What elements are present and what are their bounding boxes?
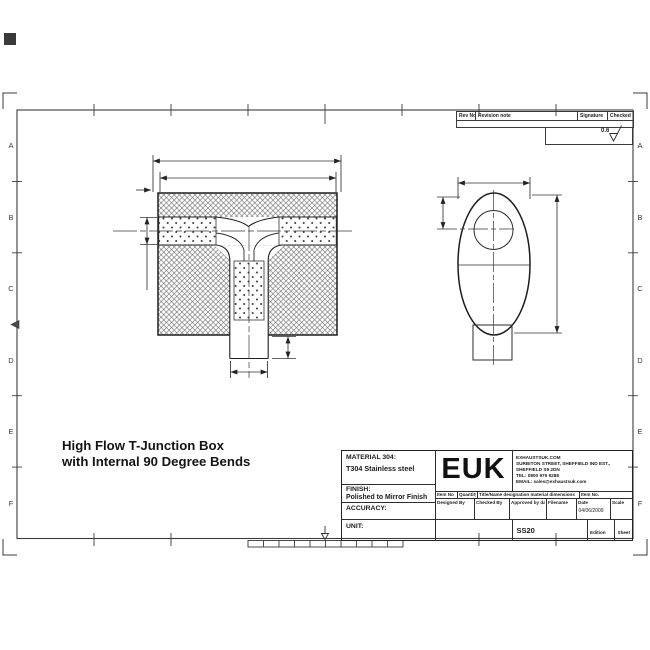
sheet-label: Sheet xyxy=(618,530,633,535)
signature-header: Signature xyxy=(578,112,608,120)
main-view xyxy=(113,155,352,378)
checked-header: Checked xyxy=(608,112,633,120)
approved-by-header: Approved by date xyxy=(511,500,545,505)
item-no2-header: Item No. xyxy=(581,492,631,497)
zone-letter-right-b: B xyxy=(634,213,646,222)
checked-by-header: Checked By xyxy=(476,500,508,505)
filename-header: Filename xyxy=(548,500,575,505)
roughness-value: 0.6 xyxy=(601,128,609,134)
material-label: MATERIAL 304: xyxy=(346,454,396,461)
drawing-linework xyxy=(0,0,650,650)
center-mark-bottom-icon xyxy=(322,526,329,540)
drawing-sheet: A B C D E F A B C D E F Rev No Revision … xyxy=(0,0,650,650)
drawing-title: High Flow T-Junction Box with Internal 9… xyxy=(62,438,250,469)
finish-label: FINISH: xyxy=(346,486,371,493)
company-logo: EUK xyxy=(435,453,512,486)
finish-value: Polished to Mirror Finish xyxy=(346,494,427,501)
drawing-title-line2: with Internal 90 Degree Bends xyxy=(62,454,250,470)
revision-table-header-row: Rev No Revision note Signature Checked xyxy=(457,112,633,121)
company-email: EMAIL: sales@exhaustsuk.com xyxy=(516,479,610,485)
zone-letter-right-f: F xyxy=(634,499,646,508)
item-no-header: Item No xyxy=(437,492,456,497)
company-address1: SURBITON STREET, SHEFFIELD IND EST., xyxy=(516,461,610,467)
date-value: 04/06/2009 xyxy=(579,508,604,514)
unit-label: UNIT: xyxy=(346,523,363,530)
rev-no-header: Rev No xyxy=(457,112,476,120)
scale-header: Scale xyxy=(612,500,631,505)
drawing-title-line1: High Flow T-Junction Box xyxy=(62,438,250,454)
accuracy-label: ACCURACY: xyxy=(346,505,387,512)
zone-letter-left-e: E xyxy=(5,427,17,436)
edition-label: Edition xyxy=(590,530,613,535)
date-header: Date xyxy=(578,500,609,505)
quantity-header: Quantity xyxy=(459,492,476,497)
drawing-number: SS20 xyxy=(517,526,535,535)
revision-table: Rev No Revision note Signature Checked xyxy=(456,111,634,128)
company-address: EXHAUSTSUK.COM SURBITON STREET, SHEFFIEL… xyxy=(516,455,610,486)
zone-letter-right-c: C xyxy=(634,284,646,293)
side-view xyxy=(437,177,562,368)
zone-letter-right-a: A xyxy=(634,141,646,150)
zone-letter-left-c: C xyxy=(5,284,17,293)
zone-letter-left-f: F xyxy=(5,499,17,508)
reference-scale-strip xyxy=(248,541,403,548)
roughness-box: 0.6 xyxy=(545,127,633,145)
title-block: MATERIAL 304: T304 Stainless steel FINIS… xyxy=(341,450,633,541)
scan-artifact-square xyxy=(4,33,16,45)
zone-letter-left-a: A xyxy=(5,141,17,150)
title-name-header: Title/Name designation material dimensio… xyxy=(479,492,578,497)
zone-letter-right-e: E xyxy=(634,427,646,436)
material-value: T304 Stainless steel xyxy=(346,464,414,473)
oval-body-outline xyxy=(458,193,530,335)
zone-letter-left-b: B xyxy=(5,213,17,222)
designed-by-header: Designed By xyxy=(437,500,473,505)
zone-letter-right-d: D xyxy=(634,356,646,365)
revision-note-header: Revision note xyxy=(476,112,578,120)
zone-letter-left-d: D xyxy=(5,356,17,365)
center-mark-left-icon xyxy=(11,321,19,329)
